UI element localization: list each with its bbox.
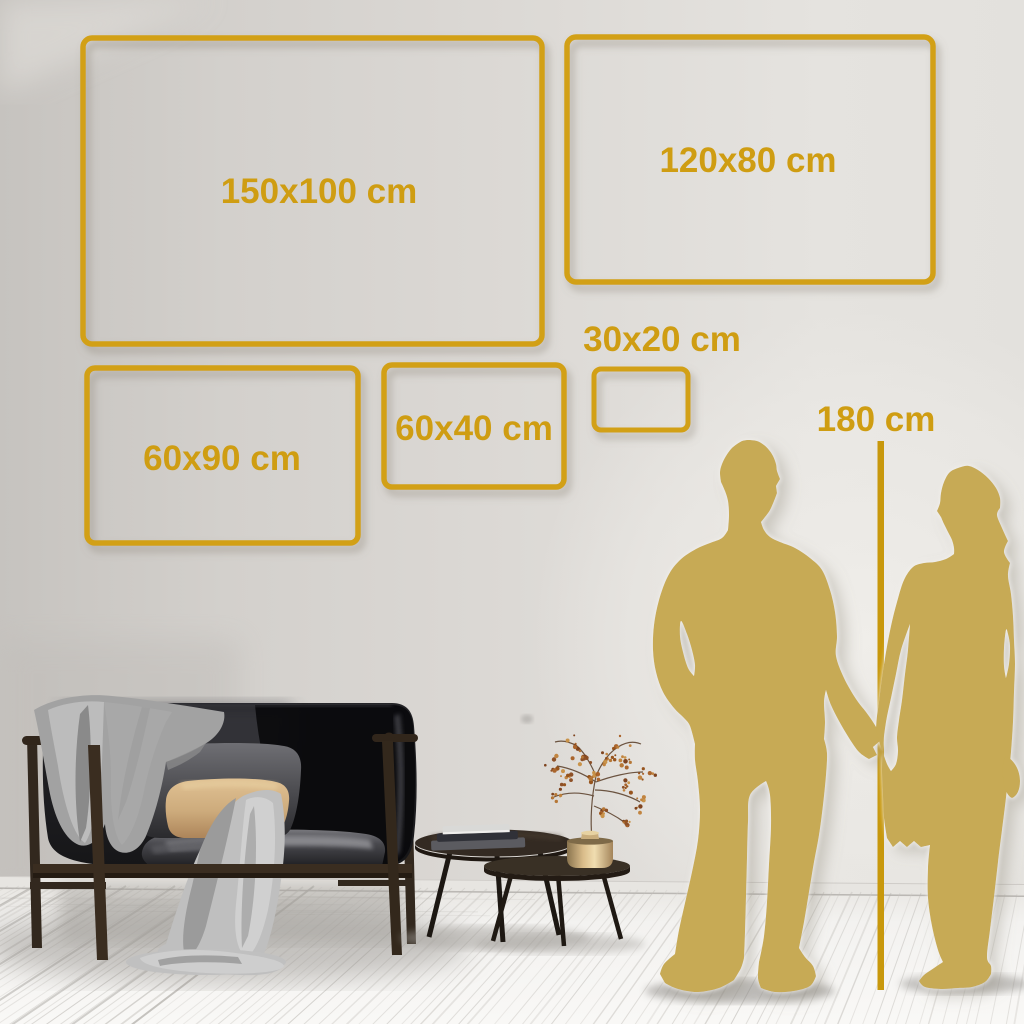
svg-text:60x90 cm: 60x90 cm: [143, 439, 301, 478]
svg-text:180 cm: 180 cm: [817, 400, 936, 439]
svg-text:60x40 cm: 60x40 cm: [395, 409, 553, 448]
svg-text:30x20 cm: 30x20 cm: [583, 320, 741, 359]
svg-text:150x100 cm: 150x100 cm: [221, 172, 418, 211]
svg-text:120x80 cm: 120x80 cm: [659, 141, 836, 180]
